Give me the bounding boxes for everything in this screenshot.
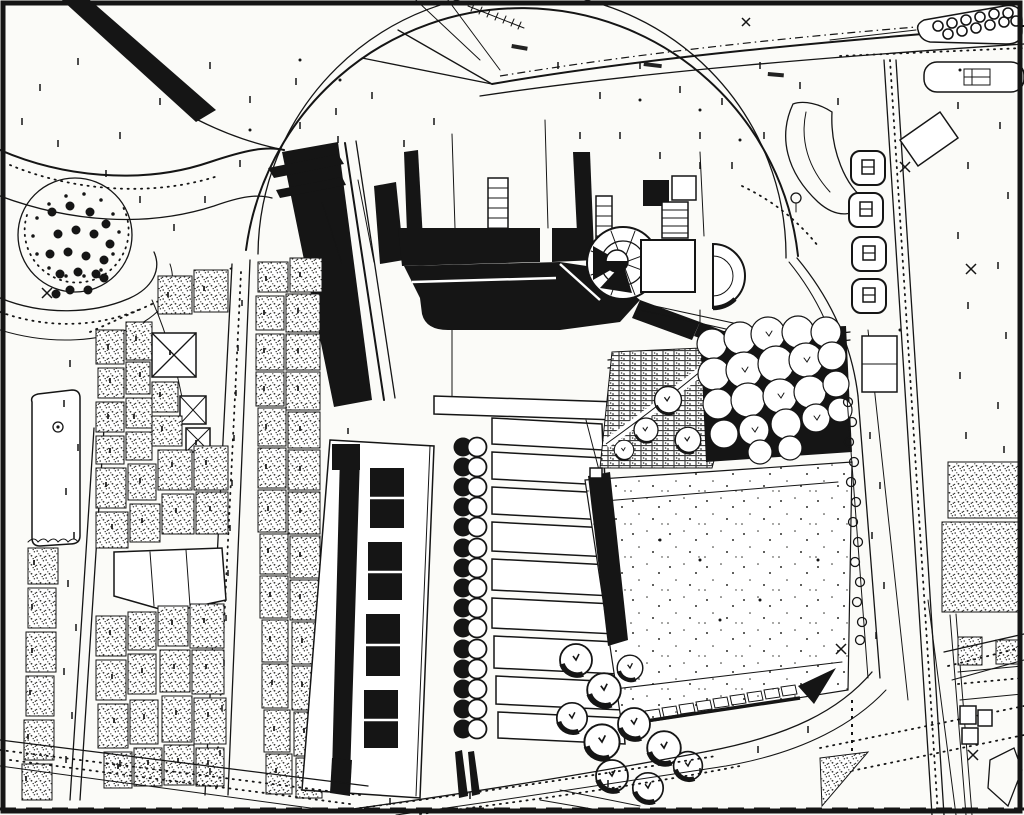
colonnade <box>454 438 487 739</box>
east-fields <box>942 462 1022 612</box>
site-plan-svg <box>0 0 1024 815</box>
site-plan-figure <box>0 0 1024 815</box>
